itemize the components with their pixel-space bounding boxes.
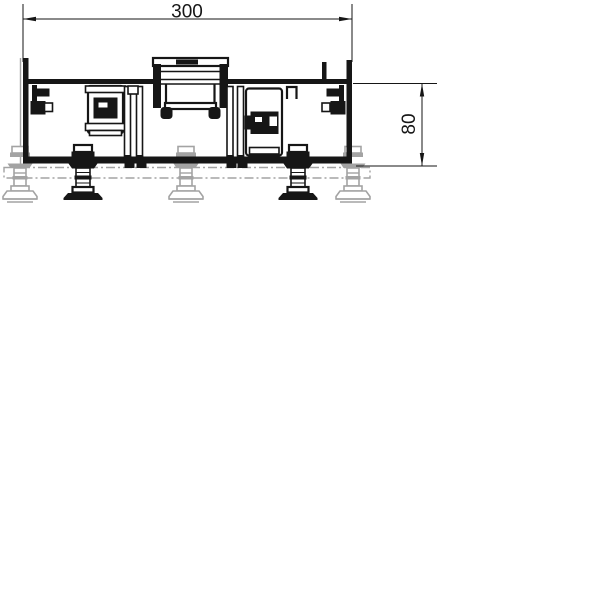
- left-wall-bracket: [31, 85, 53, 115]
- dimension-width-label: 300: [171, 2, 203, 23]
- right-wall-bracket: [322, 85, 346, 115]
- right-divider-profiles: [225, 87, 246, 164]
- phantom-foot-middle: [169, 147, 203, 203]
- phantom-foot-left: [3, 147, 37, 203]
- left-divider-profiles: [123, 86, 146, 164]
- left-clamp-box: [86, 86, 126, 136]
- leveling-foot-left: [64, 145, 103, 200]
- dimension-height-label: 80: [399, 113, 420, 134]
- technical-drawing-canvas: 300 80: [0, 0, 600, 600]
- leveling-foot-right: [279, 145, 318, 200]
- center-cover-unit: [153, 58, 228, 119]
- drawing-sheet: 300 80: [0, 0, 600, 600]
- dimension-height: 80: [353, 84, 437, 167]
- dimension-width: 300: [23, 2, 352, 63]
- phantom-foot-right: [336, 147, 370, 203]
